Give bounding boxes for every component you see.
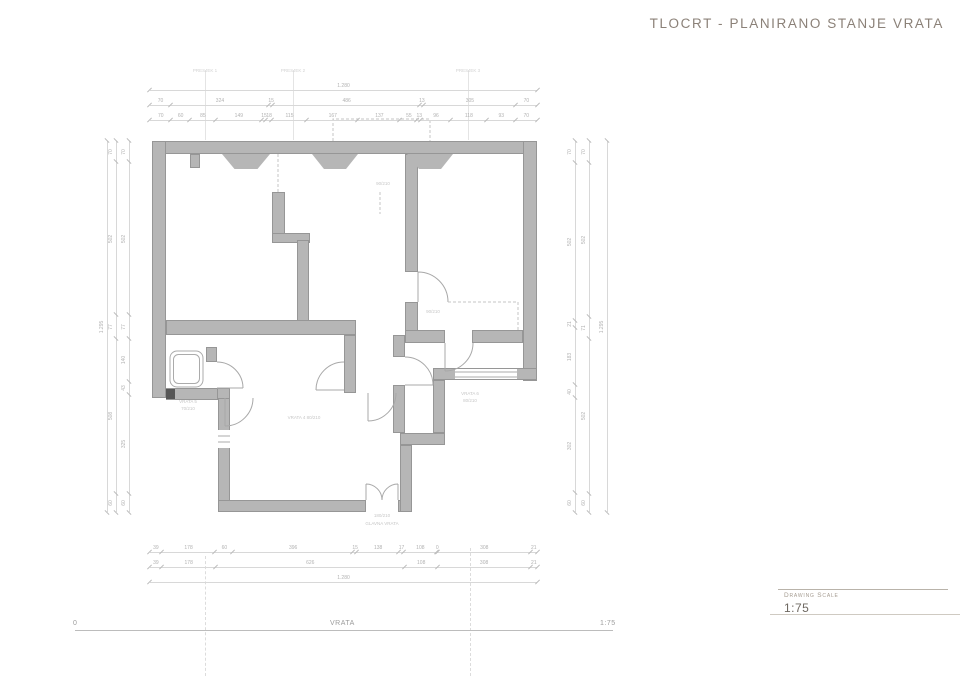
dimension-segment: 167	[307, 110, 358, 120]
dimension-segment: 308	[438, 542, 531, 552]
dimension-segment: 140	[119, 339, 129, 382]
dimension-label: 60	[108, 500, 114, 506]
ruler-zero: 0	[73, 620, 77, 627]
dimension-chain: 705027150260	[579, 141, 590, 512]
dimension-segment: 93	[487, 110, 516, 120]
title-block-rule-bottom	[770, 614, 960, 615]
door-arc	[217, 362, 243, 388]
dimension-segment: 60	[106, 494, 116, 512]
dimension-label: 70	[581, 149, 587, 155]
wall	[190, 154, 200, 168]
dimension-label: 183	[567, 352, 573, 360]
dimension-label: 60	[121, 500, 127, 506]
dimension-label: 1.280	[337, 575, 350, 581]
wall	[218, 500, 366, 512]
dimension-segment: 502	[106, 162, 116, 315]
window-gap	[455, 369, 517, 379]
dimension-segment: 396	[233, 542, 352, 552]
dimension-segment: 21	[531, 557, 537, 567]
dimension-label: 167	[329, 113, 337, 119]
dimension-label: 1.295	[99, 320, 105, 333]
dimension-label: 39	[153, 545, 159, 551]
dimension-segment: 60	[565, 493, 575, 512]
dimension-segment: 70	[150, 110, 171, 120]
dimension-segment: 302	[565, 398, 575, 493]
dimension-chain: 3917862610830821	[150, 557, 537, 568]
dimension-label: 1.295	[599, 320, 605, 333]
wall	[400, 433, 445, 445]
dimension-label: 325	[121, 440, 127, 448]
wall	[400, 445, 412, 512]
dimension-label: 486	[343, 98, 351, 104]
dimension-chain: 1.280	[150, 80, 537, 91]
dimension-label: 140	[121, 356, 127, 364]
title-block-rule-top	[778, 589, 948, 590]
dimension-segment: 96	[421, 110, 450, 120]
dimension-label: 60	[222, 545, 228, 551]
section-label: PRESJEK 3	[456, 68, 480, 73]
dimension-label: 70	[524, 113, 530, 119]
dimension-label: 70	[524, 98, 530, 104]
dimension-label: 70	[121, 149, 127, 155]
dimension-segment: 308	[438, 557, 531, 567]
dimension-segment: 1.280	[150, 572, 537, 582]
dimension-segment: 626	[216, 557, 405, 567]
dimension-segment: 149	[216, 110, 262, 120]
wall	[152, 141, 537, 154]
dimension-label: 502	[581, 236, 587, 244]
wall	[297, 240, 309, 325]
dimension-segment: 1.280	[150, 80, 537, 90]
plan-label: 180/210	[374, 513, 390, 518]
ruler-line	[75, 630, 613, 631]
dimension-segment: 60	[171, 110, 189, 120]
window-reveal	[222, 154, 270, 169]
door-arc	[368, 393, 396, 421]
dimension-segment: 486	[273, 95, 420, 105]
dimension-chain: 39178603961513817108030821	[150, 542, 537, 553]
drawing-title: TLOCRT - PLANIRANO STANJE VRATA	[650, 16, 944, 31]
window-gap	[218, 430, 230, 448]
dimension-segment: 502	[565, 163, 575, 321]
dimension-label: 40	[567, 389, 573, 395]
dashed-balcony-outline	[333, 119, 430, 141]
dimension-label: 178	[184, 545, 192, 551]
dimension-segment: 70	[516, 110, 537, 120]
dimension-label: 138	[374, 545, 382, 551]
wall	[523, 141, 537, 381]
dimension-segment: 118	[451, 110, 487, 120]
dimension-segment: 183	[565, 328, 575, 386]
wall	[393, 385, 405, 433]
dimension-segment: 137	[358, 110, 400, 120]
dimension-label: 55	[406, 113, 412, 119]
dimension-chain: 705027750860	[106, 141, 117, 512]
ruler-scale: 1:75	[600, 620, 616, 627]
dimension-segment: 39	[150, 542, 162, 552]
wall	[166, 320, 356, 335]
dimension-label: 149	[235, 113, 243, 119]
dimension-chain: 70608514915181151671375513961189370	[150, 110, 537, 121]
dimension-label: 115	[286, 113, 294, 119]
dimension-segment: 108	[404, 542, 437, 552]
dimension-segment: 55	[400, 110, 417, 120]
wall	[405, 330, 445, 343]
dimension-label: 96	[433, 113, 439, 119]
door-arc	[418, 272, 448, 302]
dimension-label: 502	[581, 412, 587, 420]
dimension-segment: 502	[579, 339, 589, 494]
dimension-label: 137	[375, 113, 383, 119]
dimension-label: 21	[531, 560, 537, 566]
dimension-segment: 60	[215, 542, 233, 552]
dimension-label: 93	[498, 113, 504, 119]
dimension-label: 502	[108, 235, 114, 243]
wall	[393, 335, 405, 357]
section-label: PRESJEK 2	[281, 68, 305, 73]
dimension-chain: 70324154861330570	[150, 95, 537, 106]
dimension-label: 508	[108, 412, 114, 420]
dimension-label: 626	[306, 560, 314, 566]
dimension-label: 70	[158, 113, 164, 119]
plan-label: GLAVNA VRATA	[365, 521, 398, 526]
wall	[433, 380, 445, 433]
dimension-segment: 70	[150, 95, 171, 105]
dimension-label: 502	[567, 238, 573, 246]
plan-label: VRATA 5	[179, 399, 197, 404]
door-arc	[316, 362, 344, 390]
bathtub	[170, 351, 203, 387]
dimension-label: 1.280	[337, 83, 350, 89]
dimension-segment: 502	[579, 163, 589, 318]
dimension-label: 108	[416, 545, 424, 551]
drawing-scale-value: 1:75	[784, 601, 809, 615]
dimension-segment: 325	[119, 395, 129, 494]
dimension-chain: 70502211834030260	[565, 141, 576, 512]
ruler-title: VRATA	[330, 620, 355, 627]
dimension-label: 77	[121, 324, 127, 330]
dimension-chain: 70502771404332560	[119, 141, 130, 512]
dimension-segment: 1.295	[597, 141, 607, 512]
dimension-segment: 70	[516, 95, 537, 105]
dimension-chain: 1.280	[150, 572, 537, 583]
dimension-label: 308	[480, 560, 488, 566]
dimension-segment: 178	[162, 542, 216, 552]
wall	[218, 398, 230, 512]
door-arc	[445, 343, 473, 371]
double-door-arc	[366, 484, 398, 500]
dashed-removed-wall	[448, 302, 518, 330]
dimension-label: 85	[200, 113, 206, 119]
dimension-segment: 108	[405, 557, 438, 567]
dimension-label: 108	[417, 560, 425, 566]
door-arc	[405, 357, 433, 385]
dimension-label: 178	[185, 560, 193, 566]
dimension-segment: 39	[150, 557, 162, 567]
wall	[206, 347, 217, 362]
dimension-segment: 60	[579, 494, 589, 512]
dimension-label: 70	[158, 98, 164, 104]
wall	[152, 141, 166, 398]
dimension-segment: 324	[171, 95, 269, 105]
plan-label: VRATA 4 80/210	[288, 415, 321, 420]
dimension-label: 305	[466, 98, 474, 104]
dimension-label: 60	[567, 500, 573, 506]
dimension-segment: 305	[424, 95, 516, 105]
dimension-label: 70	[567, 149, 573, 155]
dimension-label: 43	[121, 385, 127, 391]
plan-label: 70/210	[181, 406, 195, 411]
dimension-label: 118	[465, 113, 473, 119]
bathtub-inner	[174, 355, 200, 384]
wall	[405, 154, 418, 272]
dimension-label: 21	[531, 545, 537, 551]
drawing-scale-label: Drawing Scale	[784, 592, 839, 599]
dimension-label: 302	[567, 441, 573, 449]
plan-label: 90/210	[426, 309, 440, 314]
wall	[344, 335, 356, 393]
plan-label: VRATA 6	[461, 391, 479, 396]
plan-label: 80/210	[463, 398, 477, 403]
dimension-segment: 85	[190, 110, 216, 120]
section-label: PRESJEK 1	[193, 68, 217, 73]
dimension-segment: 502	[119, 162, 129, 315]
dimension-chain: 1.295	[597, 141, 608, 512]
dimension-segment: 60	[119, 494, 129, 512]
dimension-label: 71	[581, 325, 587, 331]
drawing-sheet: TLOCRT - PLANIRANO STANJE VRATA	[0, 0, 960, 680]
dimension-segment: 21	[531, 542, 537, 552]
dimension-label: 77	[108, 324, 114, 330]
dimension-label: 60	[178, 113, 184, 119]
dimension-label: 396	[289, 545, 297, 551]
dimension-segment: 138	[357, 542, 399, 552]
dimension-label: 70	[108, 149, 114, 155]
dimension-label: 324	[216, 98, 224, 104]
dimension-segment: 508	[106, 339, 116, 494]
dimension-label: 308	[480, 545, 488, 551]
window-reveal	[312, 154, 358, 169]
plan-label: 90/210	[376, 181, 390, 186]
dimension-segment: 115	[272, 110, 307, 120]
dimension-label: 39	[153, 560, 159, 566]
dimension-segment: 178	[162, 557, 216, 567]
wall	[472, 330, 523, 343]
dimension-label: 60	[581, 500, 587, 506]
dimension-label: 502	[121, 235, 127, 243]
